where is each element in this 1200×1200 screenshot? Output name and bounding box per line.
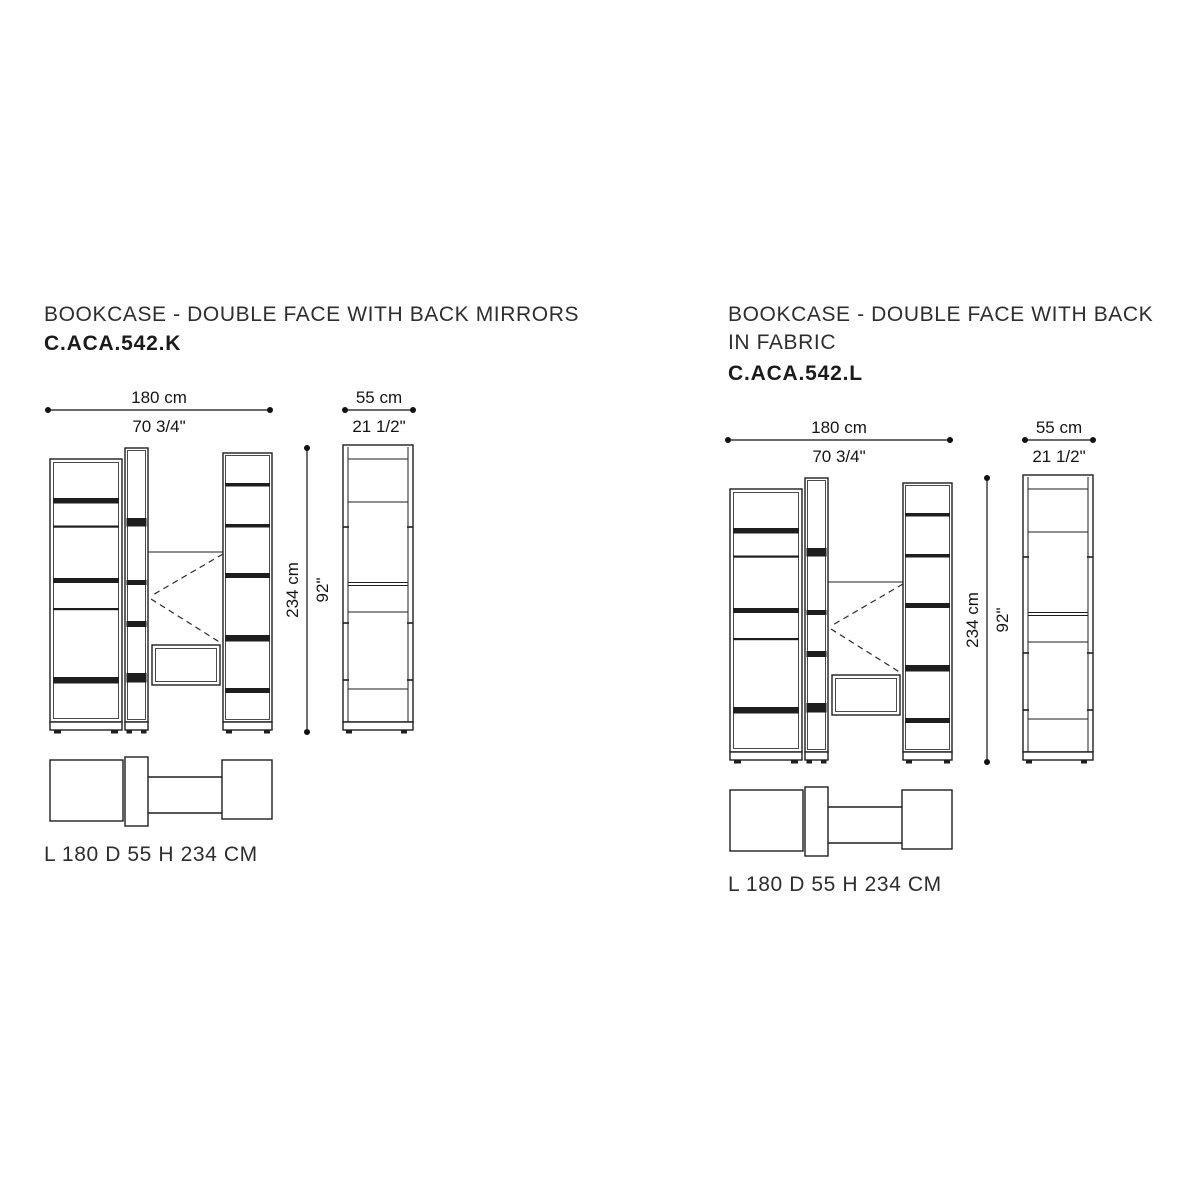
depth-cm-label: 55 cm [1036,418,1082,437]
front-elevation-drawing [50,448,272,734]
product-title-fabric-line1: BOOKCASE - DOUBLE FACE WITH BACK [728,301,1153,329]
depth-dimension: 55 cm 21 1/2" [342,388,416,436]
spec-text-mirrors: L 180 D 55 H 234 CM [44,843,258,867]
bookcase-drawing-mirrors: 180 cm 70 3/4" 55 cm 21 1/2" 234 cm 92" [40,385,430,870]
width-dimension: 180 cm 70 3/4" [45,388,273,436]
side-elevation-drawing [1023,475,1093,764]
plan-right-tower [902,790,952,849]
plan-middle-column [125,757,148,826]
plan-view-drawing [730,787,952,856]
plan-right-tower [222,760,272,819]
height-cm-label: 234 cm [963,592,982,648]
height-cm-label: 234 cm [283,562,302,618]
width-dimension: 180 cm 70 3/4" [725,418,953,466]
width-cm-label: 180 cm [811,418,867,437]
right-tower [223,453,272,722]
plan-middle-column [805,787,828,856]
height-in-label: 92" [313,578,332,603]
mirror-diagonal-upper [151,554,223,596]
depth-in-label: 21 1/2" [1032,447,1085,466]
width-cm-label: 180 cm [131,388,187,407]
bridge-cabinet [152,645,220,685]
front-elevation-drawing [730,478,952,764]
bridge-cabinet [832,675,900,715]
depth-cm-label: 55 cm [356,388,402,407]
height-dimension: 234 cm 92" [963,475,1012,765]
product-code-mirrors: C.ACA.542.K [44,330,181,358]
bookcase-drawing-fabric: 180 cm 70 3/4" 55 cm 21 1/2" 234 cm 92" [720,415,1110,900]
plan-view-drawing [50,757,272,826]
side-elevation-drawing [343,445,413,734]
width-in-label: 70 3/4" [812,447,865,466]
product-title-mirrors: BOOKCASE - DOUBLE FACE WITH BACK MIRRORS [44,301,579,329]
height-dimension: 234 cm 92" [283,445,332,735]
spec-text-fabric: L 180 D 55 H 234 CM [728,873,942,897]
plan-left-tower [50,760,123,821]
plan-left-tower [730,790,803,851]
product-code-fabric: C.ACA.542.L [728,360,863,388]
depth-in-label: 21 1/2" [352,417,405,436]
width-in-label: 70 3/4" [132,417,185,436]
spec-sheet-page: { "colors": { "ink": "#1e1e1e", "backgro… [0,0,1200,1200]
back-diagonal-lower [831,629,901,673]
depth-dimension: 55 cm 21 1/2" [1022,418,1096,466]
right-tower [903,483,952,752]
product-title-fabric-line2: IN FABRIC [728,329,836,357]
height-in-label: 92" [993,608,1012,633]
mirror-diagonal-lower [151,599,221,643]
back-diagonal-upper [831,584,903,626]
